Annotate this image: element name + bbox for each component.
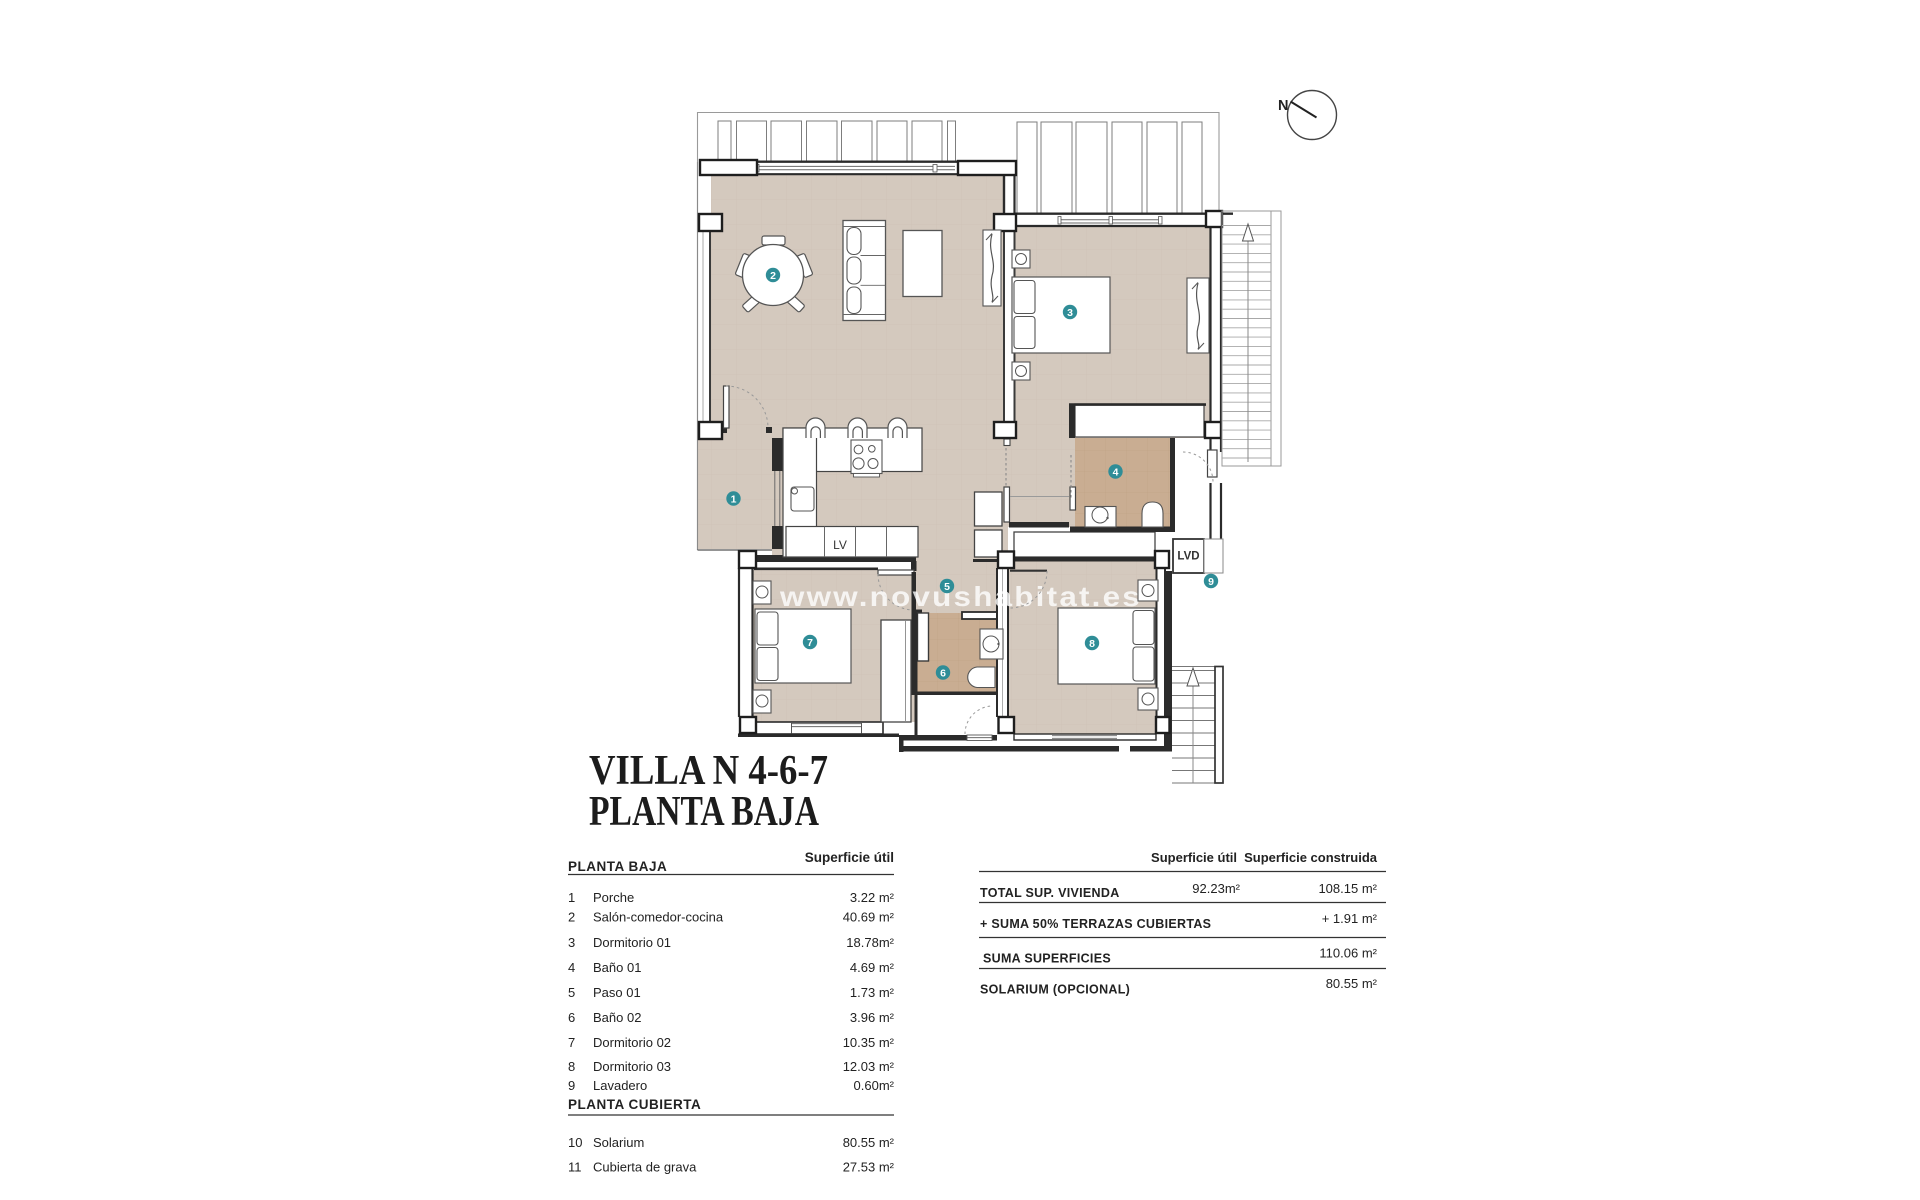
svg-text:27.53 m²: 27.53 m² xyxy=(843,1160,895,1175)
svg-text:10: 10 xyxy=(568,1135,582,1150)
svg-text:80.55 m²: 80.55 m² xyxy=(843,1135,895,1150)
svg-text:TOTAL SUP. VIVIENDA: TOTAL SUP. VIVIENDA xyxy=(980,886,1120,900)
svg-text:Superficie útil: Superficie útil xyxy=(805,850,894,865)
svg-text:7: 7 xyxy=(568,1035,575,1050)
svg-text:Solarium: Solarium xyxy=(593,1135,644,1150)
svg-text:7: 7 xyxy=(807,637,813,649)
svg-text:12.03 m²: 12.03 m² xyxy=(843,1059,895,1074)
svg-text:8: 8 xyxy=(568,1059,575,1074)
svg-text:+ SUMA 50% TERRAZAS CUBIERTAS: + SUMA 50% TERRAZAS CUBIERTAS xyxy=(980,917,1211,931)
svg-text:18.78m²: 18.78m² xyxy=(846,935,894,950)
svg-text:Lavadero: Lavadero xyxy=(593,1078,647,1093)
svg-text:1: 1 xyxy=(731,493,737,505)
svg-text:9: 9 xyxy=(568,1078,575,1093)
svg-text:0.60m²: 0.60m² xyxy=(854,1078,895,1093)
svg-text:Superficie útil: Superficie útil xyxy=(1151,850,1237,865)
svg-text:9: 9 xyxy=(1208,576,1214,588)
svg-text:108.15 m²: 108.15 m² xyxy=(1318,881,1377,896)
svg-text:SUMA SUPERFICIES: SUMA SUPERFICIES xyxy=(983,952,1111,966)
svg-text:PLANTA BAJA: PLANTA BAJA xyxy=(568,859,667,874)
svg-text:4: 4 xyxy=(1113,466,1119,478)
svg-text:1.73 m²: 1.73 m² xyxy=(850,985,895,1000)
svg-text:110.06 m²: 110.06 m² xyxy=(1319,946,1377,961)
svg-text:6: 6 xyxy=(568,1010,575,1025)
svg-text:10.35 m²: 10.35 m² xyxy=(843,1035,895,1050)
svg-text:92.23m²: 92.23m² xyxy=(1192,881,1240,896)
svg-text:PLANTA BAJA: PLANTA BAJA xyxy=(589,789,820,835)
svg-text:N: N xyxy=(1278,98,1288,114)
svg-text:3.22 m²: 3.22 m² xyxy=(850,890,895,905)
svg-text:3: 3 xyxy=(568,935,575,950)
svg-text:4: 4 xyxy=(568,960,575,975)
svg-text:2: 2 xyxy=(568,910,575,925)
svg-text:LVD: LVD xyxy=(1177,551,1199,563)
svg-text:Baño 01: Baño 01 xyxy=(593,960,641,975)
svg-text:3: 3 xyxy=(1067,307,1073,319)
svg-text:11: 11 xyxy=(568,1160,582,1175)
svg-text:Dormitorio 01: Dormitorio 01 xyxy=(593,935,671,950)
svg-text:6: 6 xyxy=(940,667,946,679)
svg-text:3.96 m²: 3.96 m² xyxy=(850,1010,895,1025)
svg-text:VILLA N 4-6-7: VILLA N 4-6-7 xyxy=(589,748,828,794)
svg-text:40.69 m²: 40.69 m² xyxy=(843,910,895,925)
svg-text:1: 1 xyxy=(568,890,575,905)
svg-text:2: 2 xyxy=(770,270,776,282)
svg-text:8: 8 xyxy=(1089,638,1095,650)
svg-text:Dormitorio 02: Dormitorio 02 xyxy=(593,1035,671,1050)
svg-text:Paso 01: Paso 01 xyxy=(593,985,641,1000)
svg-text:Cubierta de grava: Cubierta de grava xyxy=(593,1160,697,1175)
svg-text:+ 1.91 m²: + 1.91 m² xyxy=(1322,911,1378,926)
svg-text:Porche: Porche xyxy=(593,890,634,905)
svg-text:80.55 m²: 80.55 m² xyxy=(1326,976,1378,991)
svg-text:www.novushabitat.es: www.novushabitat.es xyxy=(779,581,1142,612)
svg-text:SOLARIUM (OPCIONAL): SOLARIUM (OPCIONAL) xyxy=(980,983,1130,997)
svg-text:PLANTA CUBIERTA: PLANTA CUBIERTA xyxy=(568,1097,701,1112)
svg-text:Salón-comedor-cocina: Salón-comedor-cocina xyxy=(593,910,724,925)
svg-text:5: 5 xyxy=(944,581,950,593)
svg-text:Baño 02: Baño 02 xyxy=(593,1010,641,1025)
svg-text:4.69 m²: 4.69 m² xyxy=(850,960,895,975)
svg-text:LV: LV xyxy=(833,538,847,552)
svg-text:Dormitorio 03: Dormitorio 03 xyxy=(593,1059,671,1074)
svg-text:5: 5 xyxy=(568,985,575,1000)
svg-text:Superficie construida: Superficie construida xyxy=(1244,850,1378,865)
